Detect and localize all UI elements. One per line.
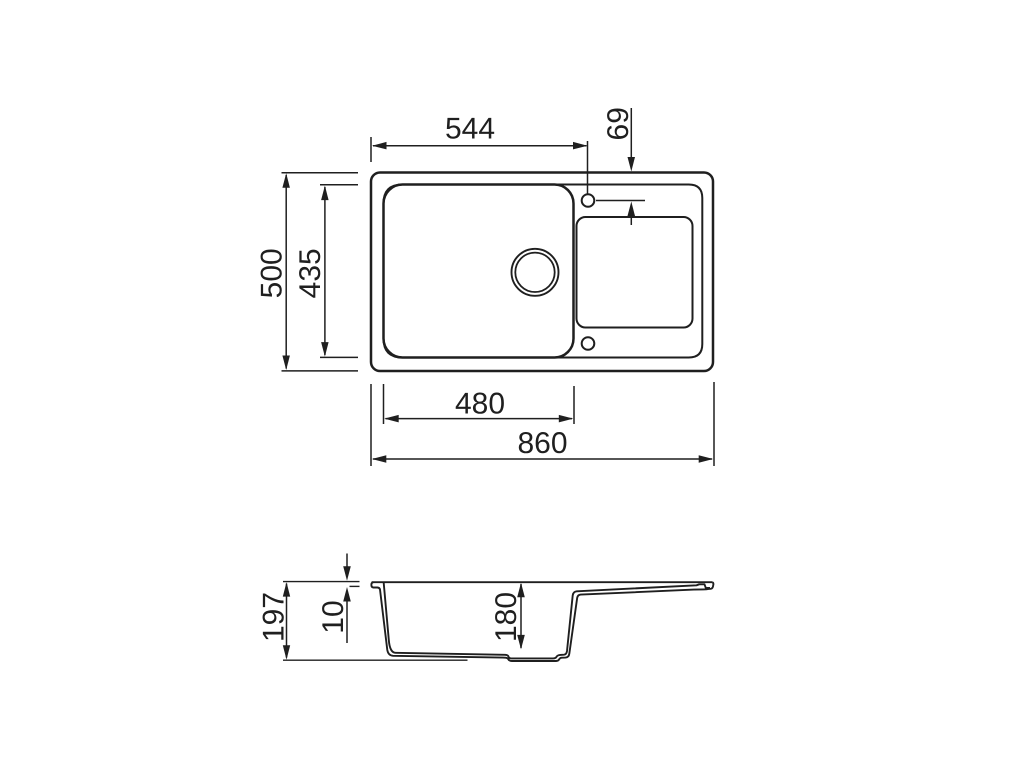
svg-text:69: 69 [602, 107, 635, 140]
svg-text:10: 10 [317, 600, 350, 633]
svg-text:500: 500 [256, 248, 289, 298]
svg-text:180: 180 [490, 592, 523, 642]
svg-text:480: 480 [455, 387, 505, 420]
svg-text:860: 860 [517, 427, 567, 460]
svg-text:435: 435 [294, 248, 327, 298]
svg-text:544: 544 [445, 113, 495, 146]
svg-text:197: 197 [258, 592, 291, 642]
